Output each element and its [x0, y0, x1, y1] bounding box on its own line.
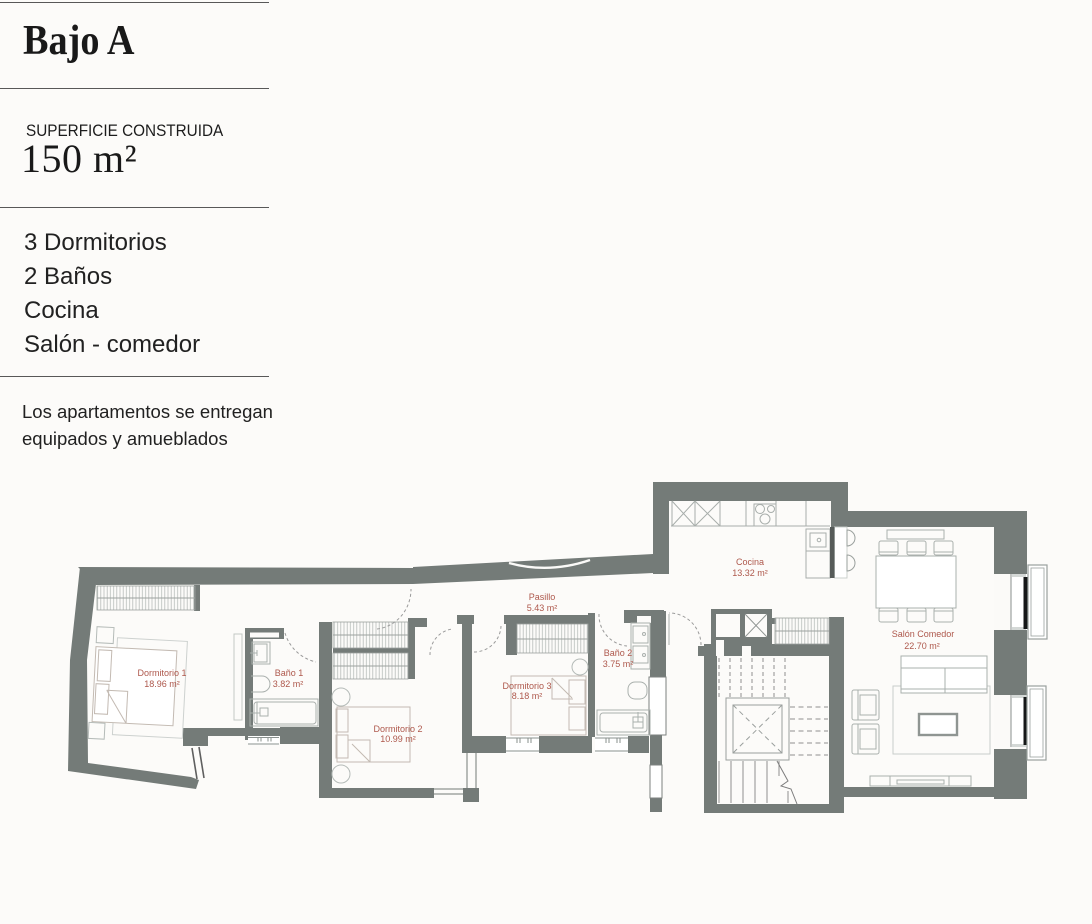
svg-text:3.82 m²: 3.82 m² — [273, 679, 304, 689]
svg-text:8.18 m²: 8.18 m² — [512, 691, 543, 701]
svg-text:Dormitorio 2: Dormitorio 2 — [373, 724, 422, 734]
svg-text:Pasillo: Pasillo — [529, 592, 556, 602]
svg-text:Baño 1: Baño 1 — [275, 668, 304, 678]
svg-text:22.70 m²: 22.70 m² — [904, 641, 940, 651]
svg-text:Cocina: Cocina — [736, 557, 764, 567]
svg-text:5.43 m²: 5.43 m² — [527, 603, 558, 613]
svg-text:Dormitorio 1: Dormitorio 1 — [137, 668, 186, 678]
svg-text:18.96 m²: 18.96 m² — [144, 679, 180, 689]
svg-text:10.99 m²: 10.99 m² — [380, 734, 416, 744]
svg-text:Dormitorio 3: Dormitorio 3 — [502, 681, 551, 691]
svg-text:Baño 2: Baño 2 — [604, 648, 633, 658]
svg-text:13.32 m²: 13.32 m² — [732, 568, 768, 578]
svg-text:3.75 m²: 3.75 m² — [603, 659, 634, 669]
svg-text:Salón Comedor: Salón Comedor — [892, 629, 955, 639]
